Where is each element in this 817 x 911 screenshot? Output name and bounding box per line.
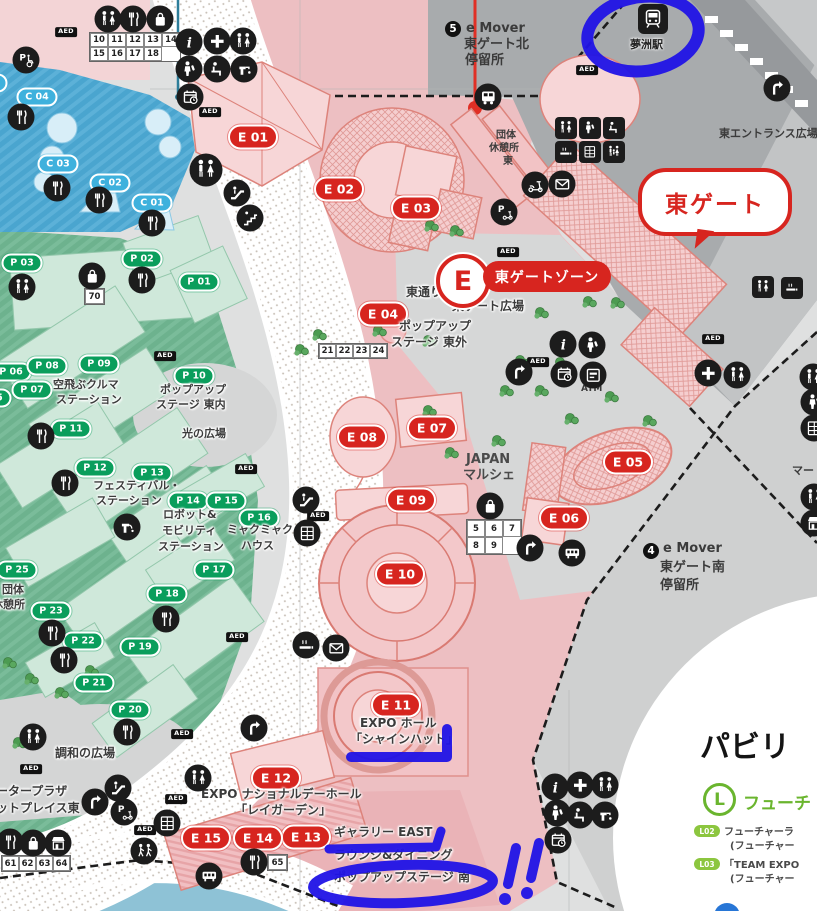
- exclamation-stroke-annotation: [531, 843, 539, 878]
- hand-drawn-annotations: [0, 0, 817, 911]
- popup-stage-south-circle-annotation: [312, 862, 493, 906]
- exclamation-dot-annotation: [521, 887, 533, 899]
- gallery-east-underline-annotation: [329, 831, 441, 849]
- exclamation-stroke-annotation: [508, 848, 516, 884]
- exclamation-dot-annotation: [499, 893, 511, 905]
- shine-hat-underline-annotation: [351, 729, 447, 757]
- expo-east-gate-map: E 01E 02E 03E 04E 05E 06E 07E 08E 09E 10…: [0, 0, 817, 911]
- station-circle-annotation: [582, 0, 703, 78]
